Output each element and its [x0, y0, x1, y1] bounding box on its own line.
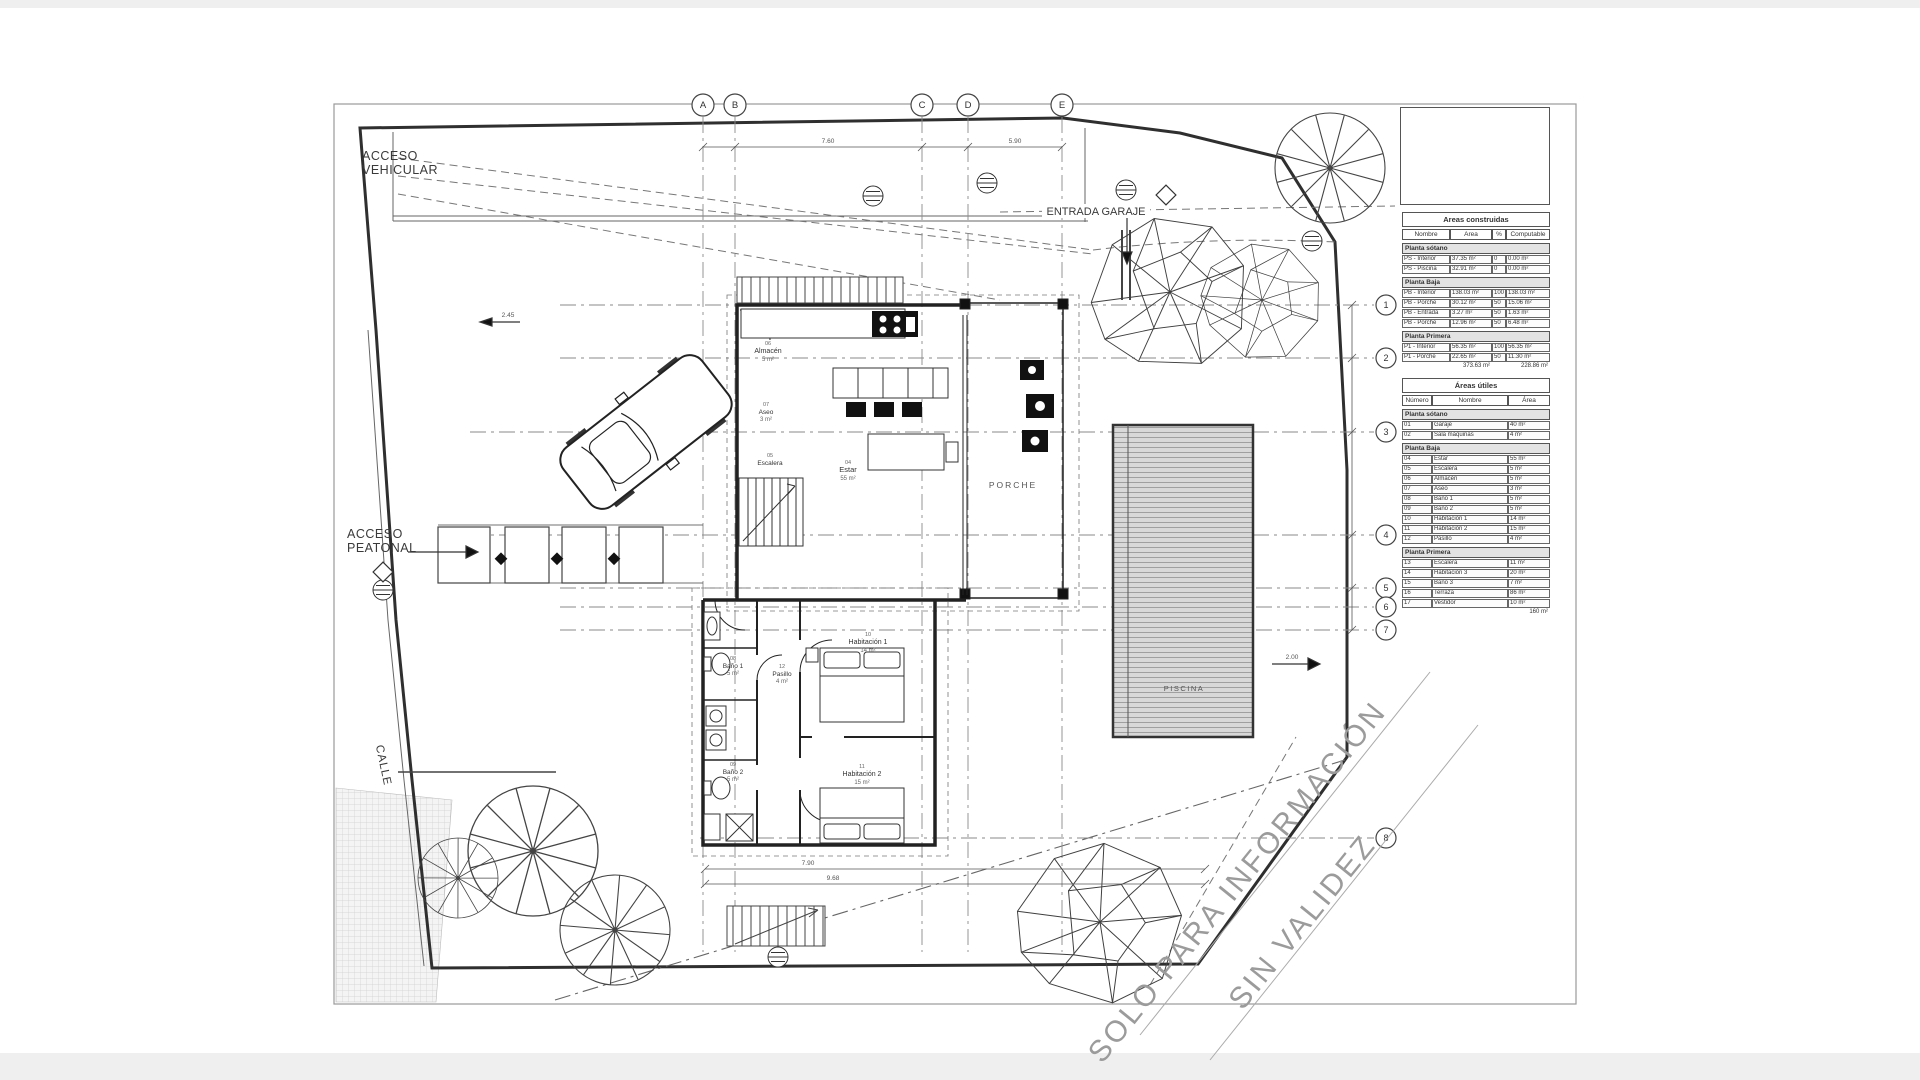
- room-num: 06: [765, 341, 771, 347]
- cell: 16: [1402, 589, 1432, 598]
- label-piscina: PISCINA: [1164, 684, 1205, 693]
- label-calle: CALLE: [373, 744, 393, 787]
- table-row: 13 Escalera 11 m²: [1402, 559, 1550, 568]
- group-label: Planta sótano: [1402, 243, 1550, 254]
- room-area: 5 m²: [727, 671, 739, 677]
- table-title: Areas construidas: [1402, 212, 1550, 227]
- planters: [438, 525, 703, 583]
- cell: 15 m²: [1508, 525, 1550, 534]
- label-entrada-garaje: ENTRADA GARAJE: [1046, 206, 1145, 218]
- label-porche: PORCHE: [989, 480, 1037, 490]
- total-computable: 228.86 m²: [1506, 363, 1550, 369]
- label-acceso-vehicular-2: VEHICULAR: [362, 163, 438, 177]
- cell: 10: [1402, 515, 1432, 524]
- cell: 4 m²: [1508, 535, 1550, 544]
- room-num: 09: [730, 762, 736, 768]
- table-row: 07 Aseo 3 m²: [1402, 485, 1550, 494]
- cell: 0: [1492, 255, 1506, 264]
- cell: 40 m²: [1508, 421, 1550, 430]
- col-header: Área: [1508, 395, 1550, 406]
- grid-number-4: 4: [1383, 530, 1388, 540]
- grid-number-5: 5: [1383, 583, 1388, 593]
- cell: 12.96 m²: [1450, 319, 1492, 328]
- cell: PB - Entrada: [1402, 309, 1450, 318]
- group-label: Planta Baja: [1402, 277, 1550, 288]
- cell: 5 m²: [1508, 495, 1550, 504]
- label-acceso-vehicular-1: ACCESO: [362, 149, 418, 163]
- grid-number-1: 1: [1383, 300, 1388, 310]
- cell: Vestidor: [1432, 599, 1508, 608]
- room-name: Almacén: [754, 348, 781, 355]
- room-num: 05: [767, 453, 773, 459]
- cell: Escalera: [1432, 465, 1508, 474]
- grid-letter-c: C: [919, 100, 926, 111]
- cell: 06: [1402, 475, 1432, 484]
- cell: Habitación 2: [1432, 525, 1508, 534]
- cell: 50: [1492, 299, 1506, 308]
- survey-marker-icon: [863, 186, 883, 206]
- cell: Habitación 3: [1432, 569, 1508, 578]
- diamond-marker-icon: [1156, 185, 1176, 205]
- dim-label: 9.68: [827, 875, 840, 882]
- grid-letter-a: A: [700, 100, 707, 111]
- cell: 86 m²: [1508, 589, 1550, 598]
- room-area: 5 m²: [727, 777, 739, 783]
- table-title: Áreas útiles: [1402, 378, 1550, 393]
- room-name: Pasillo: [772, 671, 792, 678]
- cell: 05: [1402, 465, 1432, 474]
- dim-label: 5.90: [1009, 138, 1022, 145]
- room-area: 3 m²: [760, 417, 772, 423]
- cell: 0: [1492, 265, 1506, 274]
- cell: 14: [1402, 569, 1432, 578]
- room-num: 11: [859, 764, 865, 770]
- table-row: 17 Vestidor 10 m²: [1402, 599, 1550, 608]
- grid-number-6: 6: [1383, 602, 1388, 612]
- areas-utiles-table: Áreas útiles Número Nombre Área Planta s…: [1402, 378, 1550, 616]
- stool-icon: [874, 402, 894, 417]
- cell: 6.48 m²: [1506, 319, 1550, 328]
- grid-letter-d: D: [965, 100, 972, 111]
- room-name: Estar: [839, 465, 857, 474]
- room-name: Baño 2: [723, 769, 744, 776]
- col-header: Número: [1402, 395, 1432, 406]
- room-area: 4 m²: [776, 679, 788, 685]
- cell: 01: [1402, 421, 1432, 430]
- table-row: PS - Interior 37.35 m² 0 0.00 m²: [1402, 255, 1550, 264]
- room-num: 07: [763, 402, 769, 408]
- cell: P1 - Interior: [1402, 343, 1450, 352]
- stool-icon: [846, 402, 866, 417]
- survey-marker-icon: [373, 580, 393, 600]
- group-label: Planta sótano: [1402, 409, 1550, 420]
- survey-marker-icon: [1116, 180, 1136, 200]
- cell: 100: [1492, 289, 1506, 298]
- cell: Baño 1: [1432, 495, 1508, 504]
- group-label: Planta Primera: [1402, 331, 1550, 342]
- table-row: 14 Habitación 3 20 m²: [1402, 569, 1550, 578]
- site-labels: ACCESO VEHICULAR ACCESO PEATONAL ENTRADA…: [347, 149, 1150, 787]
- table-row: 06 Almacén 5 m²: [1402, 475, 1550, 484]
- architectural-drawing: A B C D E 1 2 3 4 5 6 7 8: [0, 0, 1920, 1080]
- cell: Garaje: [1432, 421, 1508, 430]
- room-name: Habitación 1: [849, 639, 888, 646]
- cell: 15: [1402, 579, 1432, 588]
- group-label: Planta Baja: [1402, 443, 1550, 454]
- cell: 55 m²: [1508, 455, 1550, 464]
- tree-fan: [545, 860, 686, 1001]
- cell: 22.65 m²: [1450, 353, 1492, 362]
- room-num: 08: [730, 656, 736, 662]
- cell: 50: [1492, 309, 1506, 318]
- cell: 11: [1402, 525, 1432, 534]
- room-area: 15 m²: [854, 780, 869, 786]
- table-row: 09 Baño 2 5 m²: [1402, 505, 1550, 514]
- cell: 11 m²: [1508, 559, 1550, 568]
- col-header: Computable: [1506, 229, 1550, 240]
- table-row: 15 Baño 3 7 m²: [1402, 579, 1550, 588]
- room-name: Habitación 2: [843, 771, 882, 778]
- room-name: Escalera: [757, 460, 783, 467]
- table-row: PB - Porche 12.96 m² 50 6.48 m²: [1402, 319, 1550, 328]
- cell: Pasillo: [1432, 535, 1508, 544]
- table-row: 02 Sala máquinas 4 m²: [1402, 431, 1550, 440]
- cell: Estar: [1432, 455, 1508, 464]
- table-row: P1 - Interior 56.35 m² 100 56.35 m²: [1402, 343, 1550, 352]
- cell: PS - Interior: [1402, 255, 1450, 264]
- table-row: 08 Baño 1 5 m²: [1402, 495, 1550, 504]
- totals-row: 160 m²: [1402, 609, 1550, 615]
- cell: Terraza: [1432, 589, 1508, 598]
- cell: 5 m²: [1508, 465, 1550, 474]
- cell: 11.30 m²: [1506, 353, 1550, 362]
- dim-label: 7.60: [822, 138, 835, 145]
- grid-bubbles-numbers: 1 2 3 4 5 6 7 8: [1376, 295, 1396, 848]
- cell: 02: [1402, 431, 1432, 440]
- table-row: PB - Interior 138.03 m² 100 138.03 m²: [1402, 289, 1550, 298]
- col-header: Area: [1450, 229, 1492, 240]
- cell: 07: [1402, 485, 1432, 494]
- dim-label: 2.45: [502, 312, 515, 319]
- survey-marker-icon: [977, 173, 997, 193]
- tree-mesh: [1091, 219, 1243, 364]
- cell: 09: [1402, 505, 1432, 514]
- bbq-icon: [1020, 360, 1054, 452]
- cell: PB - Porche: [1402, 319, 1450, 328]
- cell: 138.03 m²: [1450, 289, 1492, 298]
- table-row: P1 - Porche 22.65 m² 50 11.30 m²: [1402, 353, 1550, 362]
- table-row: 05 Escalera 5 m²: [1402, 465, 1550, 474]
- grid-letter-e: E: [1059, 100, 1065, 111]
- cell: 1.63 m²: [1506, 309, 1550, 318]
- cell: 50: [1492, 353, 1506, 362]
- pool: PISCINA: [1113, 425, 1253, 737]
- shower-icon: [726, 814, 753, 841]
- room-num: 12: [779, 664, 785, 670]
- cell: Sala máquinas: [1432, 431, 1508, 440]
- grid-number-2: 2: [1383, 353, 1388, 363]
- cell: 12: [1402, 535, 1432, 544]
- cell: 100: [1492, 343, 1506, 352]
- dim-label: 7.90: [802, 860, 815, 867]
- table-row: 04 Estar 55 m²: [1402, 455, 1550, 464]
- cell: 13: [1402, 559, 1432, 568]
- cell: Baño 2: [1432, 505, 1508, 514]
- room-num: 10: [865, 632, 871, 638]
- cell: 17: [1402, 599, 1432, 608]
- cell: Almacén: [1432, 475, 1508, 484]
- totals-row: 373.63 m² 228.86 m²: [1402, 363, 1550, 369]
- cell: 08: [1402, 495, 1432, 504]
- table-header: Nombre Area % Computable: [1402, 229, 1550, 240]
- grid-number-3: 3: [1383, 427, 1388, 437]
- survey-marker-icon: [768, 947, 788, 967]
- table-row: PB - Entrada 3.27 m² 50 1.63 m²: [1402, 309, 1550, 318]
- table-row: 16 Terraza 86 m²: [1402, 589, 1550, 598]
- cell: Baño 3: [1432, 579, 1508, 588]
- table-row: 10 Habitación 1 14 m²: [1402, 515, 1550, 524]
- survey-marker-icon: [1302, 231, 1322, 251]
- cell: 0.00 m²: [1506, 265, 1550, 274]
- table-row: 12 Pasillo 4 m²: [1402, 535, 1550, 544]
- washer-icon: [706, 706, 726, 750]
- cell: 37.35 m²: [1450, 255, 1492, 264]
- grid-letter-b: B: [732, 100, 738, 111]
- sink-icon: [704, 814, 720, 840]
- dim-label: 2.00: [1286, 654, 1299, 661]
- room-area: 55 m²: [840, 476, 855, 482]
- cell: P1 - Porche: [1402, 353, 1450, 362]
- street-texture: [336, 788, 452, 1002]
- stool-icon: [902, 402, 922, 417]
- table-row: PS - Piscina 32.91 m² 0 0.00 m²: [1402, 265, 1550, 274]
- cell: 3 m²: [1508, 485, 1550, 494]
- cell: 5 m²: [1508, 505, 1550, 514]
- cell: 10 m²: [1508, 599, 1550, 608]
- label-acceso-peatonal-2: PEATONAL: [347, 541, 417, 555]
- room-area: 5 m²: [762, 357, 774, 363]
- floor-plan-sheet: A B C D E 1 2 3 4 5 6 7 8: [0, 0, 1920, 1080]
- col-header: Nombre: [1432, 395, 1508, 406]
- cell: 50: [1492, 319, 1506, 328]
- cell: Escalera: [1432, 559, 1508, 568]
- cell: 138.03 m²: [1506, 289, 1550, 298]
- cell: 3.27 m²: [1450, 309, 1492, 318]
- room-name: Baño 1: [723, 663, 744, 670]
- cell: 32.91 m²: [1450, 265, 1492, 274]
- col-header: %: [1492, 229, 1506, 240]
- cell: PB - Porche: [1402, 299, 1450, 308]
- grid-bubbles-letters: A B C D E: [692, 94, 1073, 116]
- cell: 0.00 m²: [1506, 255, 1550, 264]
- cell: 04: [1402, 455, 1432, 464]
- label-acceso-peatonal-1: ACCESO: [347, 527, 403, 541]
- diamond-marker-icon: [373, 562, 393, 582]
- table-row: PB - Porche 30.12 m² 50 15.06 m²: [1402, 299, 1550, 308]
- cell: PS - Piscina: [1402, 265, 1450, 274]
- cell: Habitación 1: [1432, 515, 1508, 524]
- cell: Aseo: [1432, 485, 1508, 494]
- cell: 14 m²: [1508, 515, 1550, 524]
- grid-number-7: 7: [1383, 625, 1388, 635]
- cell: 20 m²: [1508, 569, 1550, 578]
- room-area: 14 m²: [860, 648, 875, 654]
- room-name: Aseo: [759, 409, 774, 416]
- total-area: 373.63 m²: [1450, 363, 1492, 369]
- cell: 15.06 m²: [1506, 299, 1550, 308]
- total-area: 160 m²: [1508, 609, 1550, 615]
- group-label: Planta Primera: [1402, 547, 1550, 558]
- table-header: Número Nombre Área: [1402, 395, 1550, 406]
- cell: PB - Interior: [1402, 289, 1450, 298]
- cell: 4 m²: [1508, 431, 1550, 440]
- areas-construidas-table: Areas construidas Nombre Area % Computab…: [1402, 212, 1550, 370]
- cell: 7 m²: [1508, 579, 1550, 588]
- table-row: 11 Habitación 2 15 m²: [1402, 525, 1550, 534]
- col-header: Nombre: [1402, 229, 1450, 240]
- cell: 30.12 m²: [1450, 299, 1492, 308]
- cell: 56.35 m²: [1450, 343, 1492, 352]
- cell: 5 m²: [1508, 475, 1550, 484]
- cell: 56.35 m²: [1506, 343, 1550, 352]
- title-block: [1400, 107, 1550, 205]
- table-row: 01 Garaje 40 m²: [1402, 421, 1550, 430]
